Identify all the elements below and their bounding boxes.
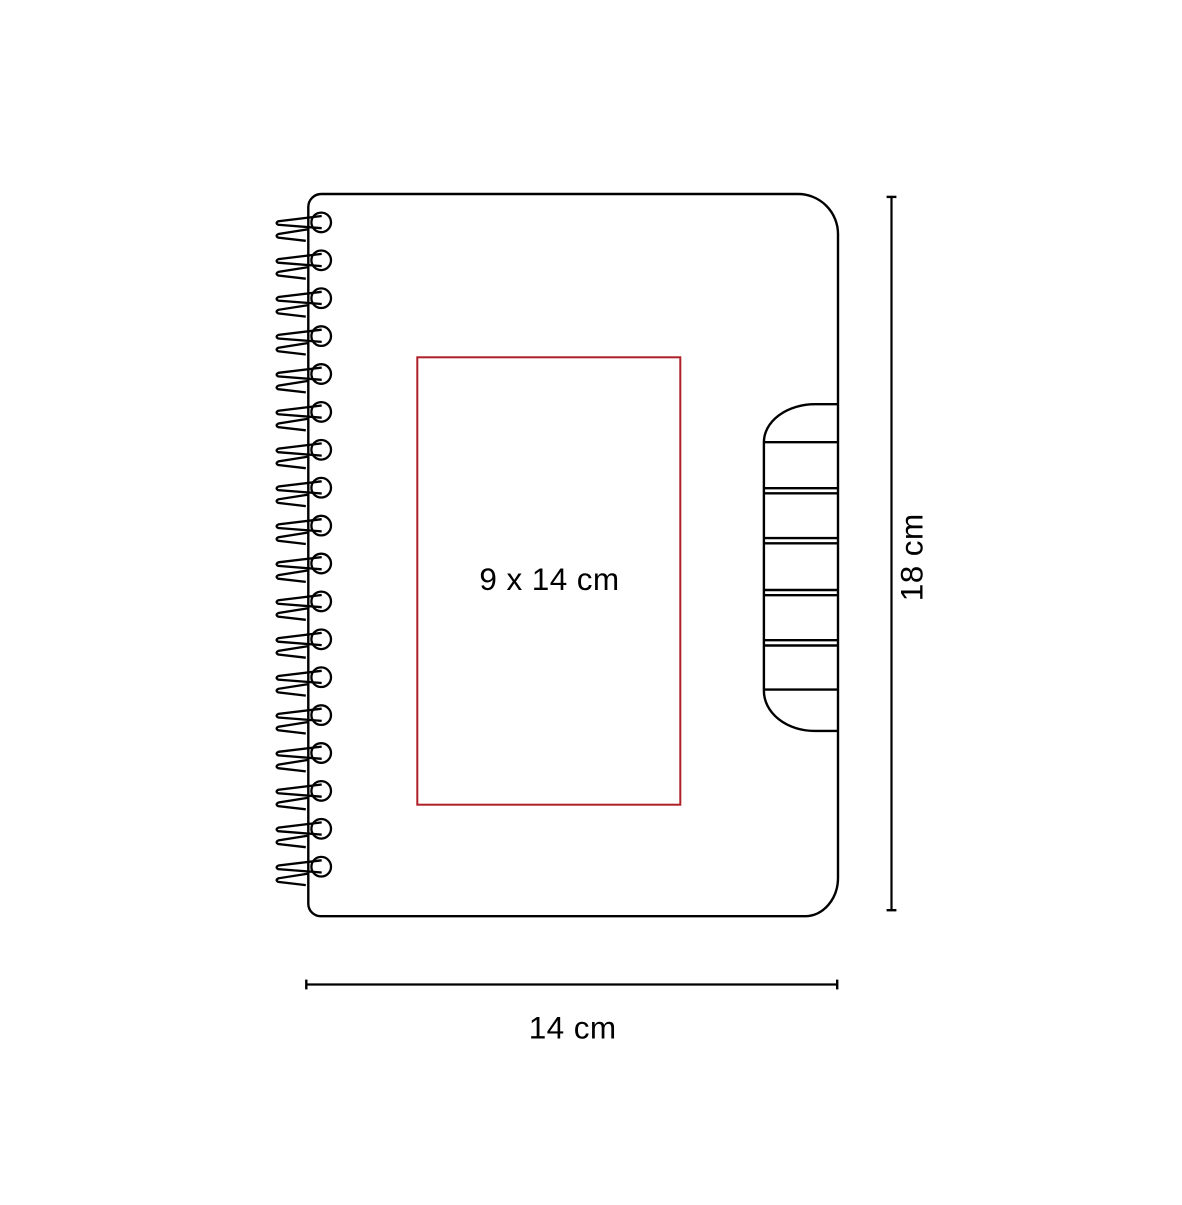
svg-text:9 x 14 cm: 9 x 14 cm [479, 561, 619, 597]
svg-text:18 cm: 18 cm [894, 513, 930, 601]
svg-text:14 cm: 14 cm [529, 1010, 617, 1046]
